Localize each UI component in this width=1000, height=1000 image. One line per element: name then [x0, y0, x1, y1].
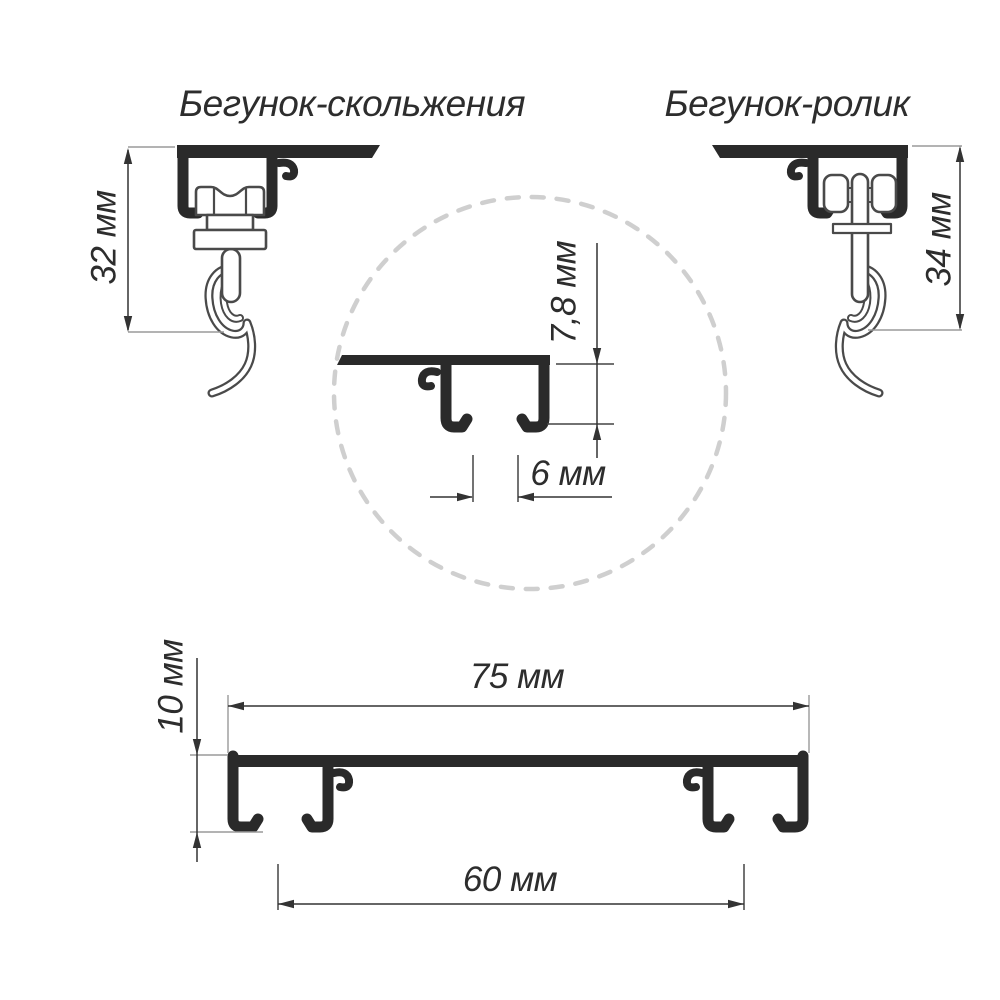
roller-wheel-left — [824, 175, 848, 212]
dim-label-60mm: 60 мм — [440, 862, 580, 897]
curtain-rail-diagram: Бегунок-скольжения Бегунок-ролик 32 мм 3… — [0, 0, 1000, 1000]
detail-witness-lines — [278, 364, 744, 910]
title-sliding-runner: Бегунок-скольжения — [172, 85, 532, 122]
roller-wheel-right — [872, 175, 896, 212]
dim-label-6mm: 6 мм — [498, 456, 638, 491]
roller-plate — [852, 174, 868, 302]
detail-circle — [334, 197, 726, 589]
dimension-32mm — [124, 148, 132, 332]
dimension-60mm — [278, 900, 744, 908]
bottom-profile — [228, 755, 808, 827]
roller-bar — [833, 224, 891, 233]
slider-block — [196, 187, 264, 215]
dimension-7-8mm — [593, 243, 601, 458]
slider-crossbar — [194, 230, 266, 249]
dim-label-32mm: 32 мм — [87, 178, 122, 298]
dim-label-34mm: 34 мм — [922, 180, 957, 300]
title-roller-runner: Бегунок-ролик — [657, 85, 917, 122]
diagram-canvas — [0, 0, 1000, 1000]
dim-label-75mm: 75 мм — [447, 659, 587, 694]
slider-stem — [222, 249, 240, 302]
slider-runner — [194, 187, 266, 393]
detail-profile — [337, 355, 550, 427]
slider-tier — [207, 215, 253, 230]
dimension-6mm — [430, 493, 612, 501]
dimension-75mm — [228, 702, 809, 710]
dim-label-10mm: 10 мм — [154, 627, 189, 747]
roller-runner — [824, 174, 896, 393]
dim-label-7-8mm: 7,8 мм — [547, 223, 582, 363]
